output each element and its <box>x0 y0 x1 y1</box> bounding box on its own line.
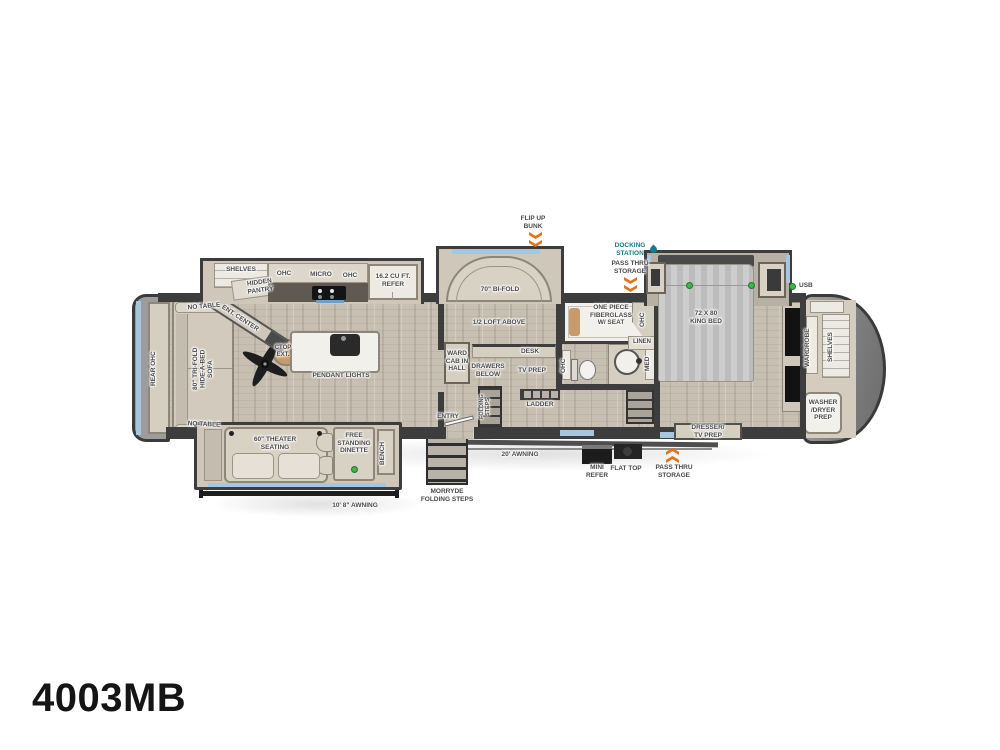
burner-2 <box>330 289 334 293</box>
front-shelves-label: SHELVES <box>827 326 835 368</box>
kitchen-shelves-label: SHELVES <box>216 266 266 274</box>
bifold-label: 70" BI-FOLD <box>462 286 538 294</box>
slide-awning-bar <box>202 491 396 496</box>
loft-ladder <box>520 389 560 400</box>
burner-3 <box>318 295 322 299</box>
burner-4 <box>330 295 334 299</box>
pass-thru-bottom-label: PASS THRU STORAGE <box>650 464 698 479</box>
bedroom-steps <box>626 388 654 424</box>
linen-label: LINEN <box>628 339 656 347</box>
bottom-wall-rear <box>166 427 196 439</box>
pass-thru-bottom-arrow-icon <box>666 448 679 463</box>
sink-faucet <box>341 336 346 341</box>
slide-end-cabinet <box>204 429 222 481</box>
flat-top-label: FLAT TOP <box>600 465 652 473</box>
bunk-window-trim <box>452 249 540 254</box>
usb-dot-left <box>686 282 693 289</box>
theater-cushion-left <box>232 453 274 479</box>
rear-ohc-label: REAR OHC <box>150 336 158 402</box>
oven-handle-trim <box>316 300 344 303</box>
pass-thru-top-arrow-icon <box>624 277 637 292</box>
sofa-backrest <box>176 314 188 424</box>
bedroom-window-right <box>786 255 790 283</box>
loft-wall-upper <box>438 302 444 350</box>
griddle-burner <box>623 447 632 456</box>
bottom-wall-entry-left <box>399 427 446 439</box>
dinette-label: FREE STANDING DINETTE <box>334 432 374 455</box>
slide-awning-cap-right <box>395 489 399 498</box>
rear-window-trim <box>136 301 141 435</box>
cupholder-left <box>229 431 234 436</box>
dinette-usb-dot <box>351 466 358 473</box>
main-awning-label: 20' AWNING <box>490 451 550 459</box>
bedroom-wardrobe-opening-2 <box>785 366 800 402</box>
ohc-left-label: OHC <box>272 270 296 278</box>
nightstand-left-inset <box>651 269 660 286</box>
flat-top-griddle <box>614 444 642 459</box>
front-closet-top-cabinet <box>810 301 844 313</box>
stove-cooktop <box>312 286 346 300</box>
pendant-lights-label: PENDANT LIGHTS <box>304 372 378 380</box>
med-label: MED <box>644 352 652 376</box>
model-number: 4003MB <box>32 676 186 720</box>
morryde-steps-label: MORRYDE FOLDING STEPS <box>402 488 492 503</box>
flip-up-bunk-arrow-icon <box>529 232 542 247</box>
toilet-bowl <box>579 360 596 380</box>
desk-label: DESK <box>510 348 550 356</box>
nightstand-right <box>758 262 786 298</box>
floorplan-canvas: REAR OHC WARDROBE SHELVES WASHER /DRYER … <box>0 0 1000 750</box>
shower-label: ONE PIECE FIBERGLASS W/ SEAT <box>576 304 646 327</box>
top-wall-rear <box>158 293 204 302</box>
refer-label: 16.2 CU FT. REFER <box>370 273 416 288</box>
bath-corner-ohc-label: OHC <box>639 307 647 333</box>
bath-ohc-label: OHC <box>560 354 568 378</box>
pillow-seam <box>659 285 753 286</box>
bath-bottom-wall <box>556 384 660 390</box>
front-wardrobe-label: WARDROBE <box>804 324 812 372</box>
slide-awning-label: 10' 8" AWNING <box>312 502 398 510</box>
bottom-window-1 <box>560 430 594 436</box>
tv-prep-label: TV PREP <box>512 367 552 375</box>
ctop-ext-label: CTOP EXT. <box>270 345 296 358</box>
half-loft-label: 1/2 LOFT ABOVE <box>464 319 534 327</box>
cupholder-right <box>317 431 322 436</box>
usb-indicator-dot <box>789 283 796 290</box>
ladder-label: LADDER <box>518 401 562 409</box>
usb-label: USB <box>799 282 823 290</box>
entry-opening <box>446 427 474 439</box>
refrigerator-door-line <box>392 292 393 300</box>
flip-up-bunk-label: FLIP UP BUNK <box>513 215 553 230</box>
dresser-label: DRESSER/ TV PREP <box>676 424 740 439</box>
nightstand-right-inset <box>767 269 781 291</box>
pass-thru-top-label: PASS THRU STORAGE <box>610 260 650 275</box>
bench-label: BENCH <box>379 438 387 468</box>
bottom-wall-main <box>474 427 806 439</box>
slide-awning-cap-left <box>199 489 203 498</box>
docking-station-label: DOCKING STATION <box>610 242 650 257</box>
mini-refer-box <box>582 445 612 464</box>
bath-faucet <box>636 358 642 364</box>
ohc-right-label: OHC <box>338 272 362 280</box>
king-bed-label: 72 X 80 KING BED <box>664 310 748 325</box>
micro-label: MICRO <box>306 271 336 279</box>
usb-dot-right <box>748 282 755 289</box>
toilet-tank <box>571 359 578 381</box>
top-wall-mid2 <box>562 293 648 302</box>
sofa-label: 80" TRI-FOLD HIDE-A-BED SOFA <box>192 330 215 408</box>
living-slide-window-trim <box>208 483 386 487</box>
burner-1 <box>318 289 322 293</box>
theater-cushion-right <box>278 453 320 479</box>
drawers-below-label: DRAWERS BELOW <box>466 363 510 378</box>
entry-label: ENTRY <box>428 413 468 421</box>
theater-label: 60" THEATER SEATING <box>244 436 306 451</box>
folding-steps-label: FOLDING STEPS <box>479 391 491 423</box>
washer-dryer-label: WASHER /DRYER PREP <box>804 399 842 422</box>
bedroom-wardrobe-opening-1 <box>785 308 800 356</box>
